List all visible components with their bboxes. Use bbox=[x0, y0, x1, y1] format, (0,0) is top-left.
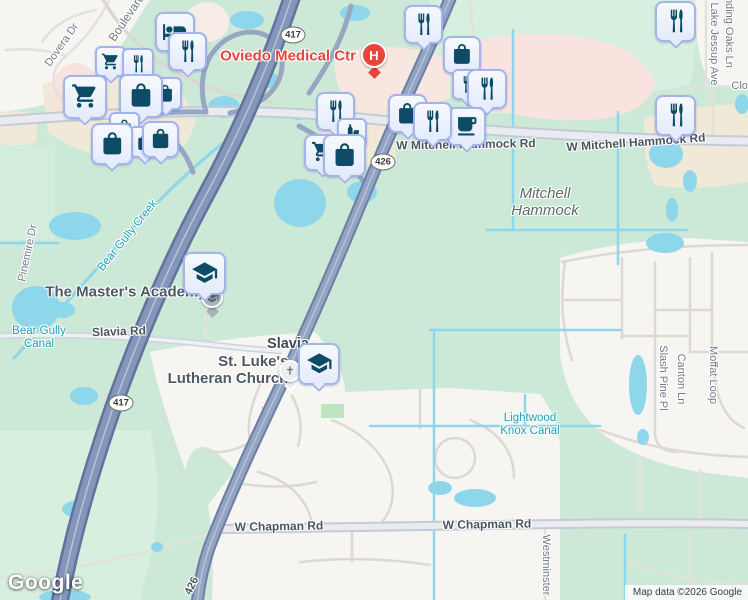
base-map bbox=[0, 0, 748, 600]
restaurant-icon bbox=[411, 12, 436, 37]
restaurant-pin[interactable] bbox=[655, 1, 696, 42]
restaurant-icon bbox=[663, 8, 689, 34]
bag-icon bbox=[450, 42, 474, 66]
hospital-marker-disc: H bbox=[361, 42, 387, 68]
school-icon bbox=[306, 350, 333, 377]
restaurant-icon bbox=[420, 109, 445, 134]
map-attribution: Map data ©2026 Google bbox=[625, 585, 748, 600]
bag-icon bbox=[99, 130, 126, 157]
restaurant-icon bbox=[663, 102, 689, 128]
hospital-marker[interactable]: H bbox=[361, 42, 387, 68]
cart-pin[interactable] bbox=[63, 75, 107, 119]
cart-icon bbox=[71, 82, 99, 110]
restaurant-icon bbox=[474, 76, 499, 101]
restaurant-icon bbox=[175, 39, 200, 64]
bag-icon bbox=[127, 81, 155, 109]
bag-icon bbox=[331, 141, 358, 168]
school-pin[interactable] bbox=[183, 252, 226, 295]
bag-icon bbox=[149, 127, 172, 150]
restaurant-icon bbox=[128, 54, 148, 74]
google-logo[interactable]: Google bbox=[8, 571, 83, 595]
restaurant-pin[interactable] bbox=[404, 5, 443, 44]
school-pin[interactable] bbox=[298, 343, 340, 385]
restaurant-pin[interactable] bbox=[168, 32, 207, 71]
school-icon bbox=[191, 259, 218, 286]
map-canvas[interactable]: Dovera DrBoulevardPinemire DrWinding Oak… bbox=[0, 0, 748, 600]
cross-icon bbox=[283, 364, 297, 378]
coffee-pin[interactable] bbox=[447, 107, 486, 146]
bag-pin[interactable] bbox=[323, 134, 366, 177]
restaurant-pin[interactable] bbox=[413, 102, 452, 141]
restaurant-pin[interactable] bbox=[467, 69, 507, 109]
coffee-icon bbox=[454, 114, 479, 139]
bag-pin[interactable] bbox=[91, 123, 133, 165]
restaurant-pin[interactable] bbox=[655, 95, 696, 136]
landuse-layer bbox=[0, 0, 748, 600]
bag-pin[interactable] bbox=[142, 121, 179, 158]
cart-icon bbox=[101, 52, 120, 71]
